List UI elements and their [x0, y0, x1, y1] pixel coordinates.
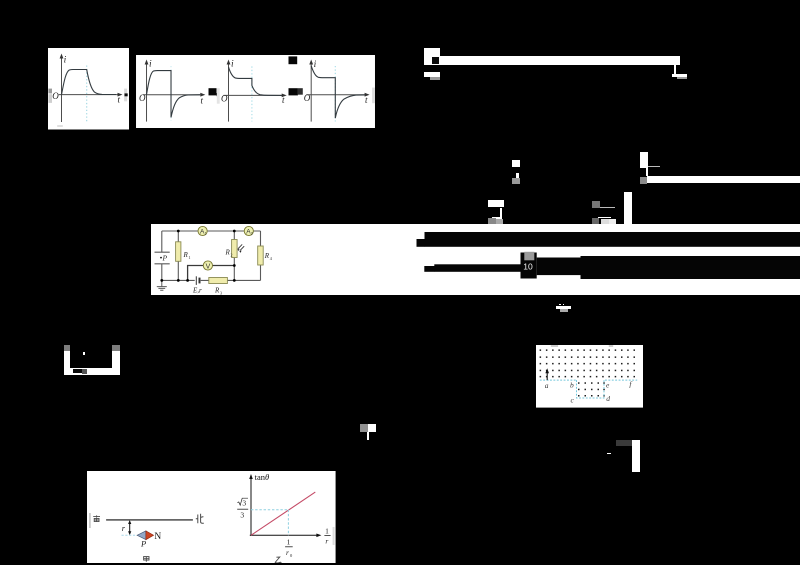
svg-text:O: O	[221, 93, 228, 103]
svg-text:3: 3	[243, 498, 247, 507]
svg-text:3: 3	[220, 290, 222, 295]
svg-text:tanθ: tanθ	[255, 472, 270, 482]
svg-text:O: O	[303, 93, 310, 103]
svg-text:i: i	[231, 59, 234, 69]
svg-text:O: O	[52, 91, 59, 101]
svg-text:4: 4	[269, 256, 271, 261]
svg-text:2: 2	[230, 252, 232, 257]
svg-text:2: 2	[250, 231, 252, 235]
svg-text:1: 1	[188, 255, 190, 260]
svg-text:N: N	[155, 532, 162, 542]
svg-text:1: 1	[287, 537, 291, 546]
svg-text:b: b	[570, 380, 574, 389]
svg-text:10: 10	[523, 261, 533, 271]
svg-text:1: 1	[204, 231, 206, 235]
svg-text:P: P	[140, 538, 146, 548]
svg-text:r: r	[326, 536, 329, 545]
svg-text:O: O	[139, 93, 146, 103]
svg-text:P: P	[161, 253, 167, 262]
svg-text:i: i	[149, 59, 152, 69]
svg-text:V: V	[205, 263, 210, 270]
svg-text:i: i	[313, 60, 316, 70]
svg-text:3: 3	[241, 510, 245, 519]
svg-text:d: d	[606, 394, 610, 403]
svg-text:1: 1	[326, 526, 330, 535]
svg-text:a: a	[545, 381, 549, 390]
svg-text:E,r: E,r	[192, 286, 202, 294]
svg-text:r: r	[286, 548, 289, 557]
svg-text:i: i	[63, 56, 66, 66]
